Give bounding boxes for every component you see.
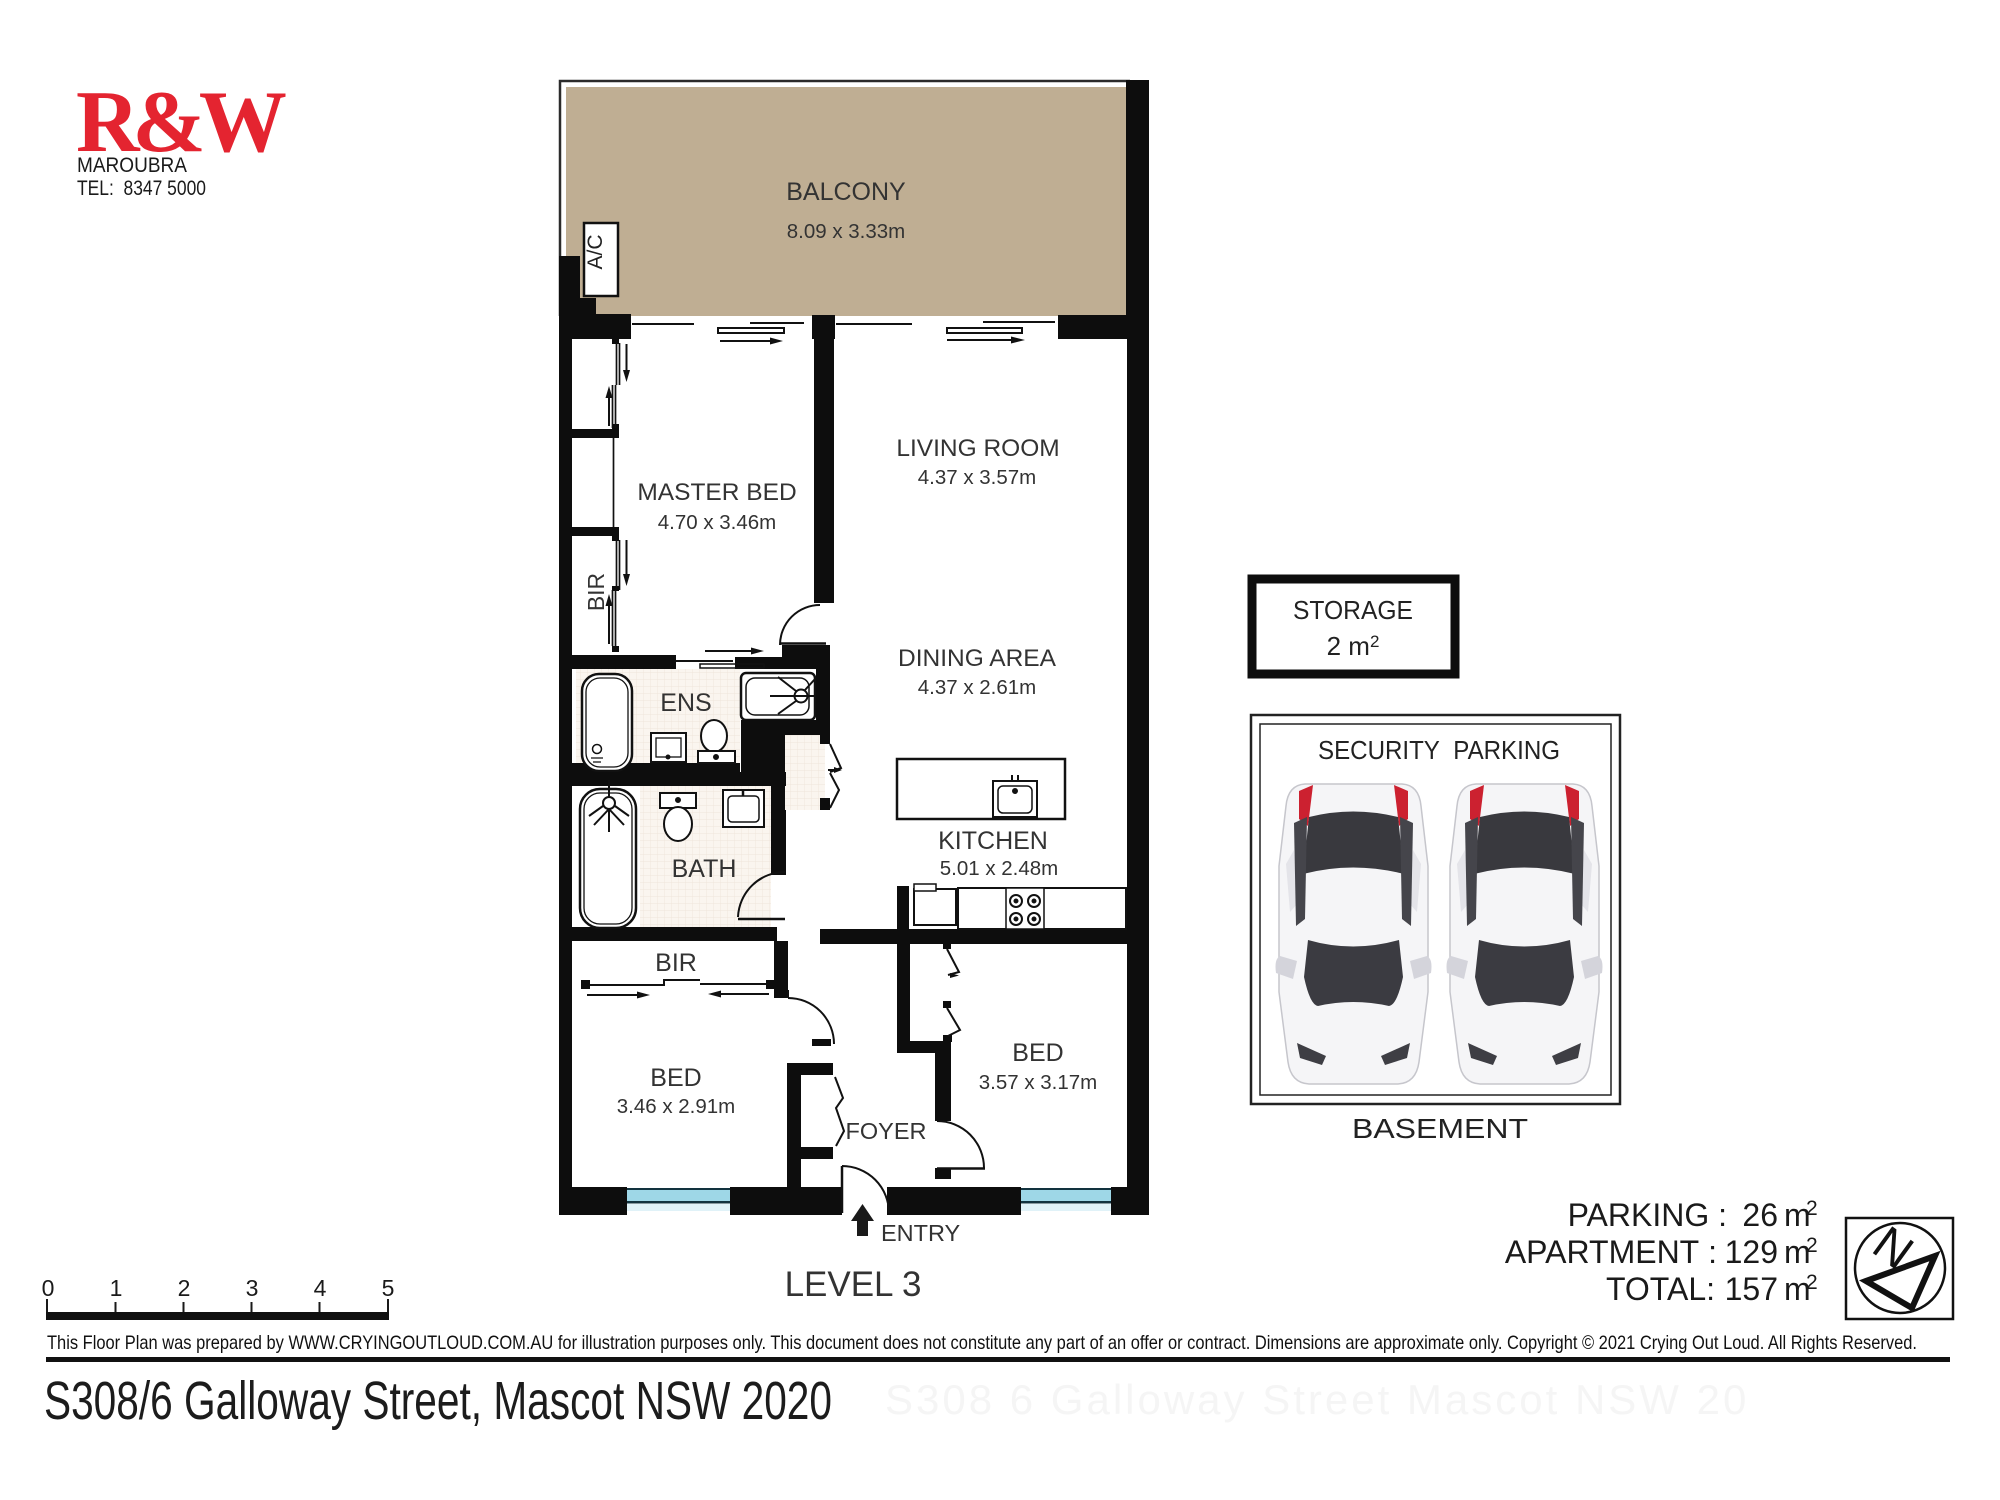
svg-text:A/C: A/C bbox=[584, 234, 607, 269]
svg-text:3.46 x 2.91m: 3.46 x 2.91m bbox=[617, 1095, 736, 1118]
svg-text:2: 2 bbox=[1806, 1271, 1818, 1294]
svg-text:3.57 x 3.17m: 3.57 x 3.17m bbox=[979, 1071, 1098, 1094]
svg-text:MAROUBRA: MAROUBRA bbox=[77, 154, 187, 177]
svg-text:BED: BED bbox=[650, 1064, 701, 1092]
svg-text:4.37 x 3.57m: 4.37 x 3.57m bbox=[918, 466, 1037, 489]
svg-text:MASTER BED: MASTER BED bbox=[637, 479, 796, 506]
svg-text:LEVEL 3: LEVEL 3 bbox=[785, 1265, 922, 1304]
svg-text:LIVING ROOM: LIVING ROOM bbox=[896, 435, 1059, 462]
svg-text:BIR: BIR bbox=[583, 573, 609, 611]
svg-text:This Floor Plan was prepared b: This Floor Plan was prepared by WWW.CRYI… bbox=[47, 1332, 1917, 1354]
svg-text:5: 5 bbox=[382, 1275, 395, 1301]
svg-text:BED: BED bbox=[1012, 1039, 1063, 1067]
svg-text:BASEMENT: BASEMENT bbox=[1352, 1113, 1528, 1144]
svg-text:FOYER: FOYER bbox=[846, 1118, 927, 1144]
svg-text:TOTAL:: TOTAL: bbox=[1606, 1271, 1715, 1307]
svg-text:4.37 x 2.61m: 4.37 x 2.61m bbox=[918, 676, 1037, 699]
svg-text:STORAGE: STORAGE bbox=[1293, 595, 1413, 625]
svg-text:4.70 x 3.46m: 4.70 x 3.46m bbox=[658, 511, 777, 534]
svg-text:4: 4 bbox=[314, 1275, 327, 1301]
svg-text:APARTMENT :: APARTMENT : bbox=[1505, 1234, 1717, 1270]
svg-text:S308 6 Galloway Street Mascot: S308 6 Galloway Street Mascot NSW 20 bbox=[885, 1376, 1749, 1423]
svg-text:S308/6 Galloway Street, Mascot: S308/6 Galloway Street, Mascot NSW 2020 bbox=[44, 1371, 832, 1431]
svg-text:DINING AREA: DINING AREA bbox=[898, 645, 1057, 672]
svg-text:129: 129 bbox=[1725, 1234, 1778, 1270]
svg-text:2: 2 bbox=[1806, 1197, 1818, 1220]
svg-text:BIR: BIR bbox=[655, 949, 697, 977]
svg-text:157: 157 bbox=[1725, 1271, 1778, 1307]
svg-text:2: 2 bbox=[178, 1275, 191, 1301]
svg-text:5.01 x 2.48m: 5.01 x 2.48m bbox=[940, 857, 1059, 880]
svg-text:BATH: BATH bbox=[672, 855, 737, 883]
svg-text:3: 3 bbox=[246, 1275, 259, 1301]
svg-text:ENS: ENS bbox=[660, 689, 711, 717]
svg-text:SECURITY PARKING: SECURITY PARKING bbox=[1318, 735, 1560, 765]
svg-text:8.09 x 3.33m: 8.09 x 3.33m bbox=[787, 220, 906, 243]
svg-text:0: 0 bbox=[42, 1275, 55, 1301]
svg-text:PARKING :: PARKING : bbox=[1568, 1197, 1727, 1233]
svg-text:ENTRY: ENTRY bbox=[881, 1220, 961, 1246]
svg-text:1: 1 bbox=[110, 1275, 123, 1301]
svg-text:BALCONY: BALCONY bbox=[786, 178, 906, 206]
svg-text:2: 2 bbox=[1806, 1234, 1818, 1257]
svg-text:KITCHEN: KITCHEN bbox=[938, 827, 1048, 855]
svg-text:TEL: 8347 5000: TEL: 8347 5000 bbox=[77, 177, 206, 200]
svg-text:26: 26 bbox=[1742, 1197, 1778, 1233]
